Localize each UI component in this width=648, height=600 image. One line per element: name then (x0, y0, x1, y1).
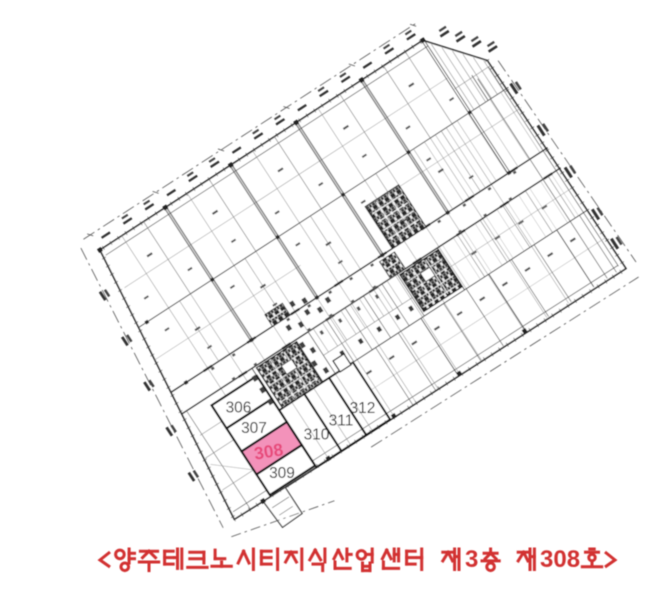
svg-text:310: 310 (304, 427, 330, 444)
svg-text:3: 3 (465, 546, 478, 573)
svg-text:312: 312 (350, 400, 376, 417)
svg-text:308: 308 (540, 546, 580, 573)
svg-text:309: 309 (269, 465, 295, 482)
svg-text:306: 306 (226, 400, 252, 417)
svg-text:307: 307 (241, 420, 267, 437)
